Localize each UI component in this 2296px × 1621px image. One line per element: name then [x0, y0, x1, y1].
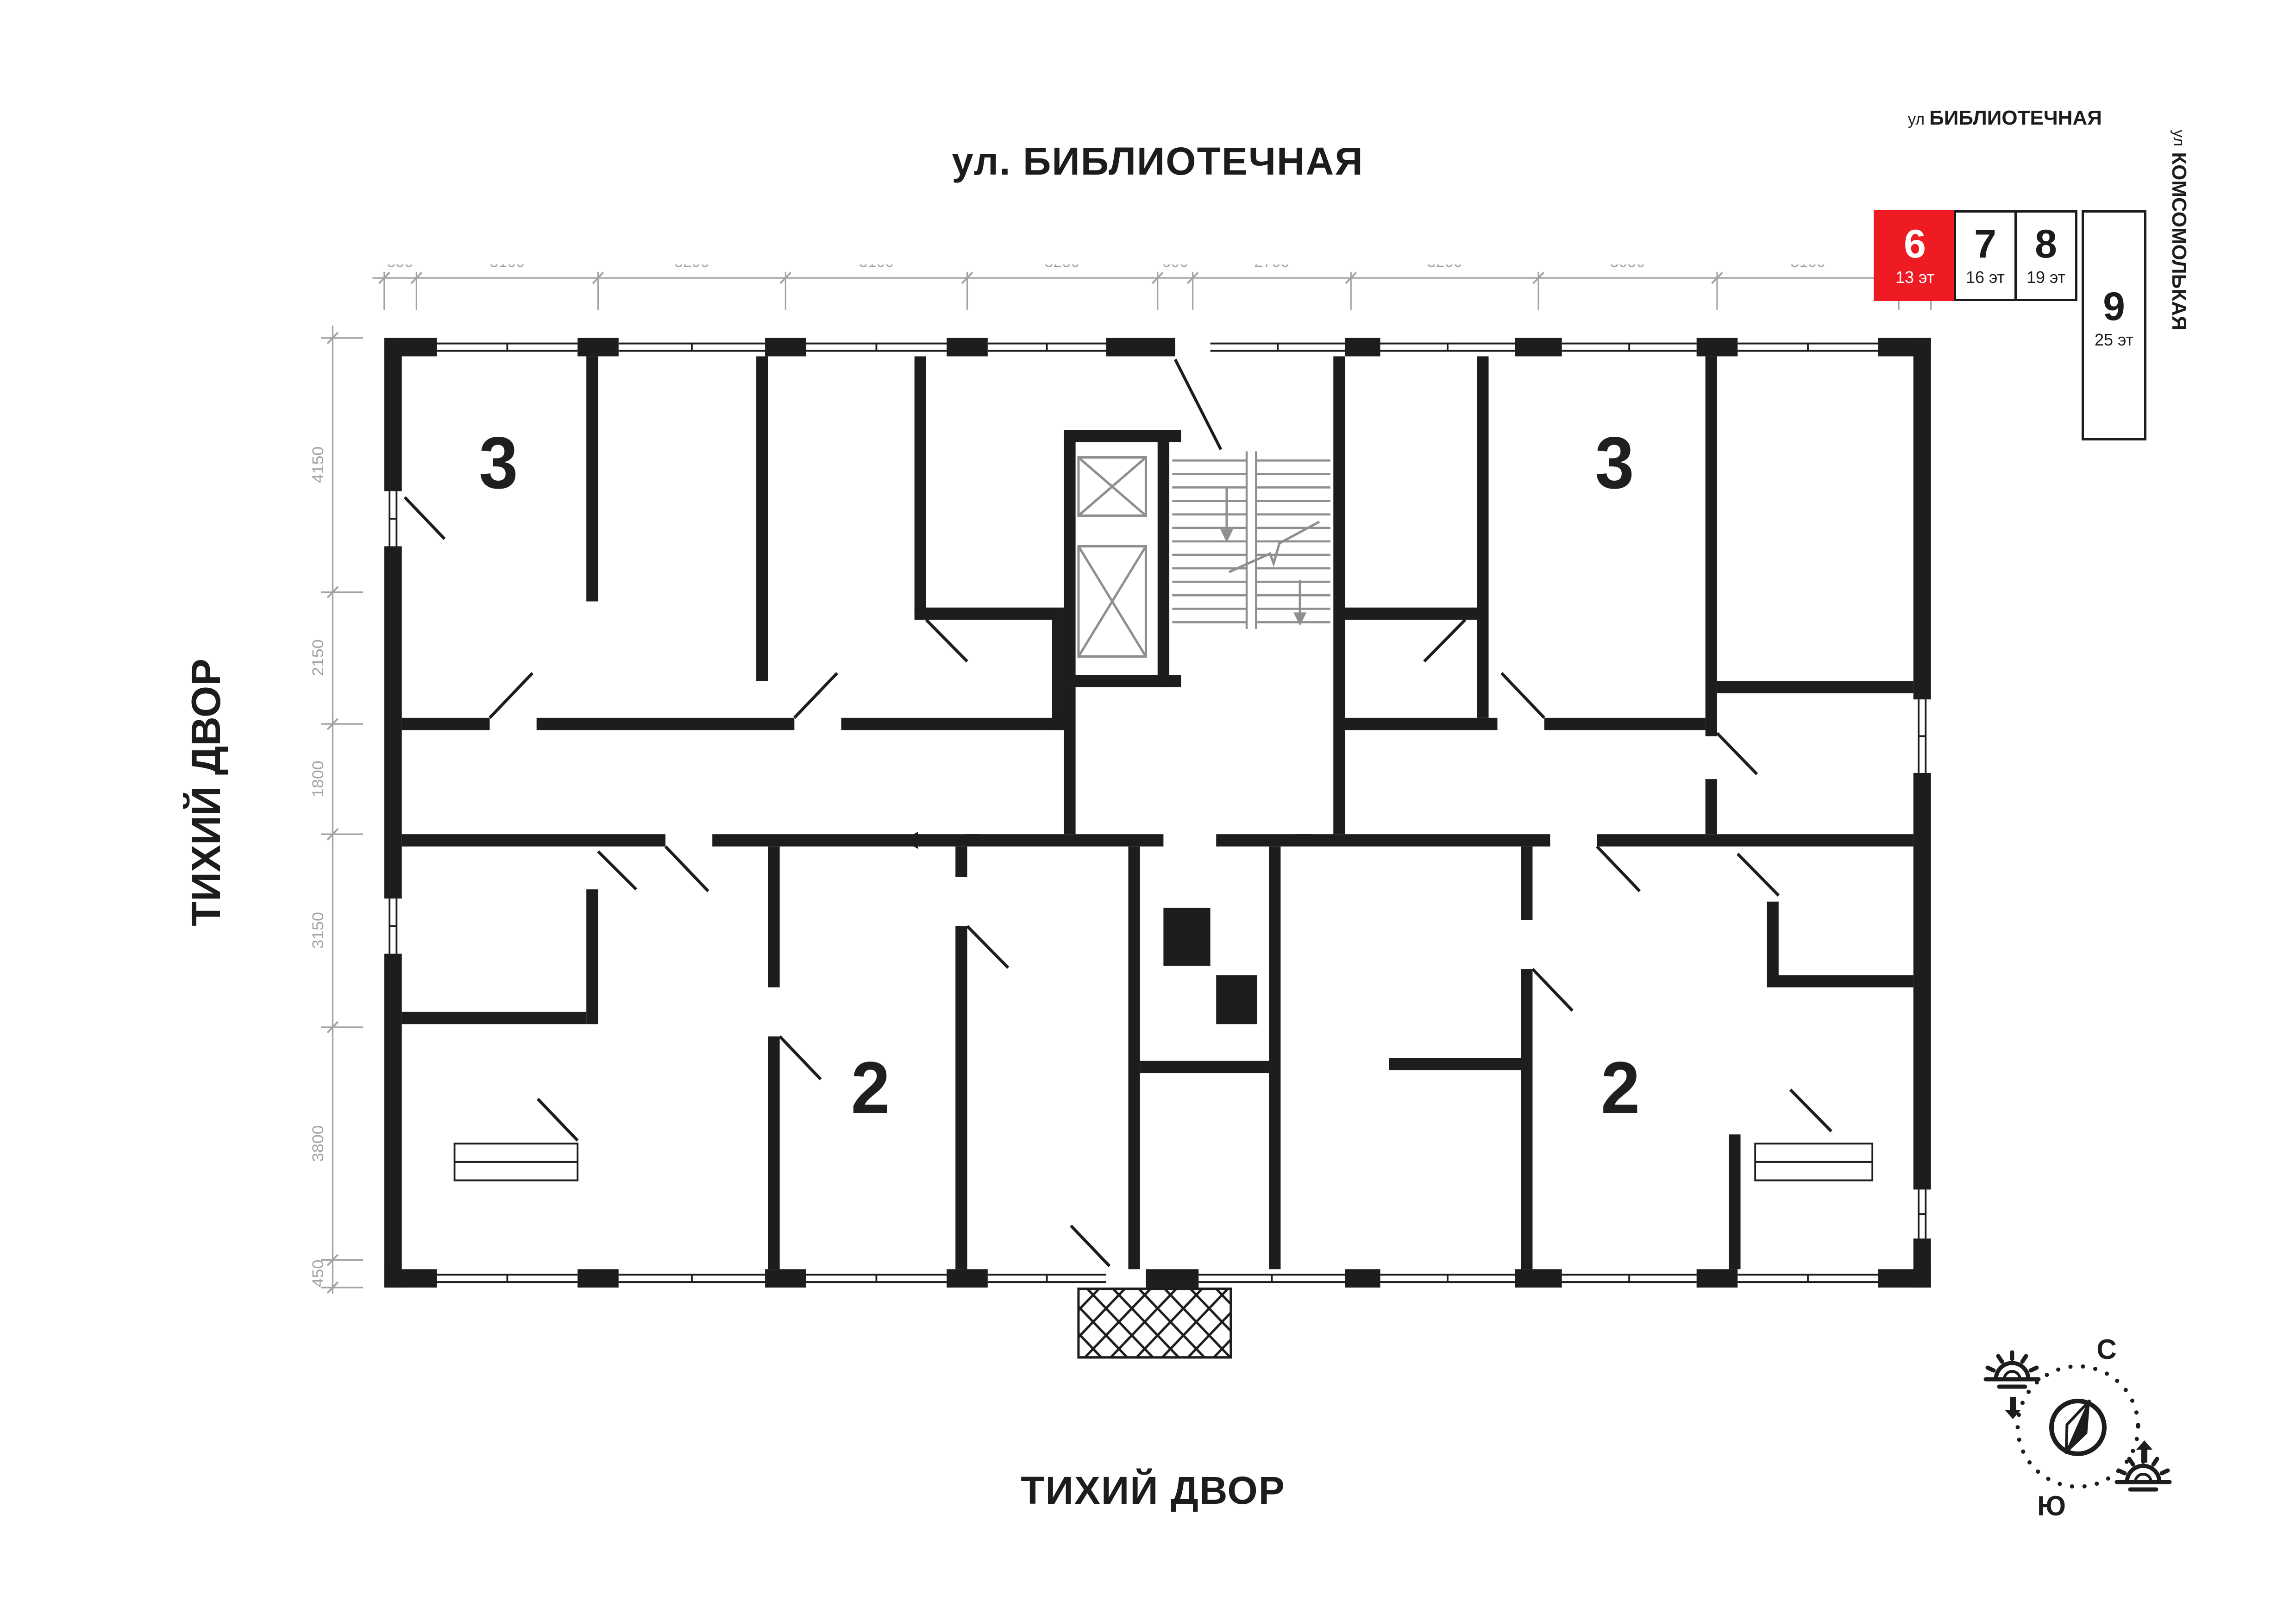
compass-south-label: Ю: [2037, 1490, 2066, 1521]
svg-text:3100: 3100: [1790, 264, 1826, 270]
svg-text:3100: 3100: [489, 264, 525, 270]
svg-text:550: 550: [387, 264, 413, 270]
minimap-street-right: ул КОМСОМОЛЬКАЯ: [2167, 130, 2190, 331]
svg-text:2150: 2150: [309, 640, 327, 676]
sunrise-arrow-up: [2136, 1440, 2152, 1463]
elevator-1: [1079, 458, 1146, 516]
street-label-left: ТИХИЙ ДВОР: [182, 607, 230, 978]
svg-text:2700: 2700: [1254, 264, 1289, 270]
elevator-2: [1079, 546, 1146, 656]
floor-plan: 550 3100 3200 3100 3250 600 2700 3200 30…: [279, 264, 1943, 1367]
apartment-label-2-left: 2: [851, 1046, 890, 1129]
svg-text:3200: 3200: [674, 264, 709, 270]
apartment-labels: 3 3 2 2: [479, 421, 1640, 1129]
minimap-block-6[interactable]: 6 13 эт: [1874, 210, 1956, 301]
minimap-block-8[interactable]: 8 19 эт: [2014, 210, 2077, 301]
dimension-labels-left: 4150 2150 1800 3150 3800 450: [309, 446, 327, 1288]
minimap-block-9[interactable]: 9 25 эт: [2082, 210, 2146, 440]
svg-text:3150: 3150: [309, 912, 327, 949]
svg-text:4150: 4150: [309, 446, 327, 483]
compass-rose-icon: [2051, 1396, 2104, 1458]
street-label-bottom: ТИХИЙ ДВОР: [783, 1468, 1524, 1513]
svg-text:3050: 3050: [1610, 264, 1645, 270]
svg-text:3100: 3100: [859, 264, 894, 270]
svg-text:3800: 3800: [309, 1125, 327, 1162]
apartment-label-3-left: 3: [479, 421, 518, 504]
svg-text:3200: 3200: [1427, 264, 1462, 270]
apartment-label-2-right: 2: [1601, 1046, 1640, 1129]
walls: [384, 338, 1931, 1288]
svg-text:450: 450: [309, 1260, 327, 1288]
minimap-street-top: улБИБЛИОТЕЧНАЯ: [1908, 107, 2102, 130]
elevator-shafts: [1079, 458, 1146, 657]
apartment-label-3-right: 3: [1595, 421, 1634, 504]
staircase: [1172, 451, 1330, 629]
balcony-railings: [455, 1143, 1873, 1180]
svg-text:600: 600: [1162, 264, 1188, 270]
dimension-line-left: [321, 326, 363, 1294]
street-label-top: ул. БИБЛИОТЕЧНАЯ: [787, 139, 1528, 184]
svg-text:3250: 3250: [1045, 264, 1080, 270]
svg-text:1800: 1800: [309, 760, 327, 797]
dimension-labels-top: 550 3100 3200 3100 3250 600 2700 3200 30…: [387, 264, 1927, 270]
compass: С Ю: [1977, 1325, 2181, 1528]
compass-north-label: С: [2096, 1334, 2116, 1365]
dimension-line-top: [372, 272, 1943, 310]
minimap-block-7[interactable]: 7 16 эт: [1954, 210, 2017, 301]
location-minimap: улБИБЛИОТЕЧНАЯ ул КОМСОМОЛЬКАЯ 6 13 эт 7…: [1871, 93, 2232, 695]
entrance-canopy-hatch: [1079, 1289, 1231, 1357]
sunset-icon: [1986, 1352, 2039, 1387]
floorplan-page: ул. БИБЛИОТЕЧНАЯ ТИХИЙ ДВОР ТИХИЙ ДВОР: [0, 0, 2296, 1621]
